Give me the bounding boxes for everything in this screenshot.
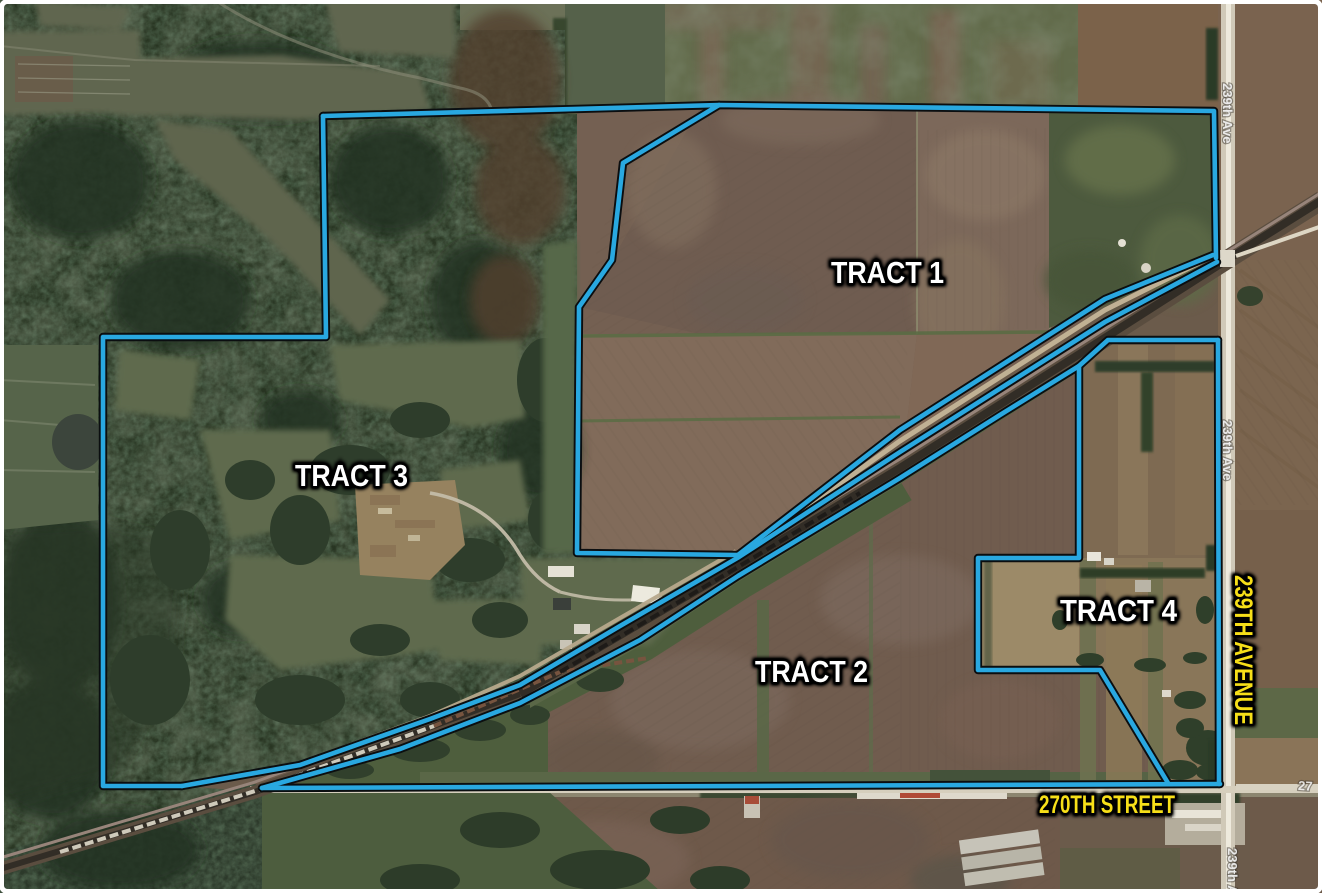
svg-text:239th Ave: 239th Ave xyxy=(1225,848,1240,893)
svg-text:TRACT 3: TRACT 3 xyxy=(295,458,408,493)
svg-text:TRACT 1: TRACT 1 xyxy=(831,255,944,290)
svg-text:270TH STREET: 270TH STREET xyxy=(1039,791,1175,819)
svg-text:239th Ave: 239th Ave xyxy=(1220,420,1235,480)
svg-text:TRACT 4: TRACT 4 xyxy=(1060,593,1178,628)
svg-text:239th Ave: 239th Ave xyxy=(1220,83,1235,143)
svg-text:TRACT 2: TRACT 2 xyxy=(755,654,868,689)
svg-text:27: 27 xyxy=(1298,778,1313,794)
svg-text:239TH AVENUE: 239TH AVENUE xyxy=(1229,575,1257,725)
